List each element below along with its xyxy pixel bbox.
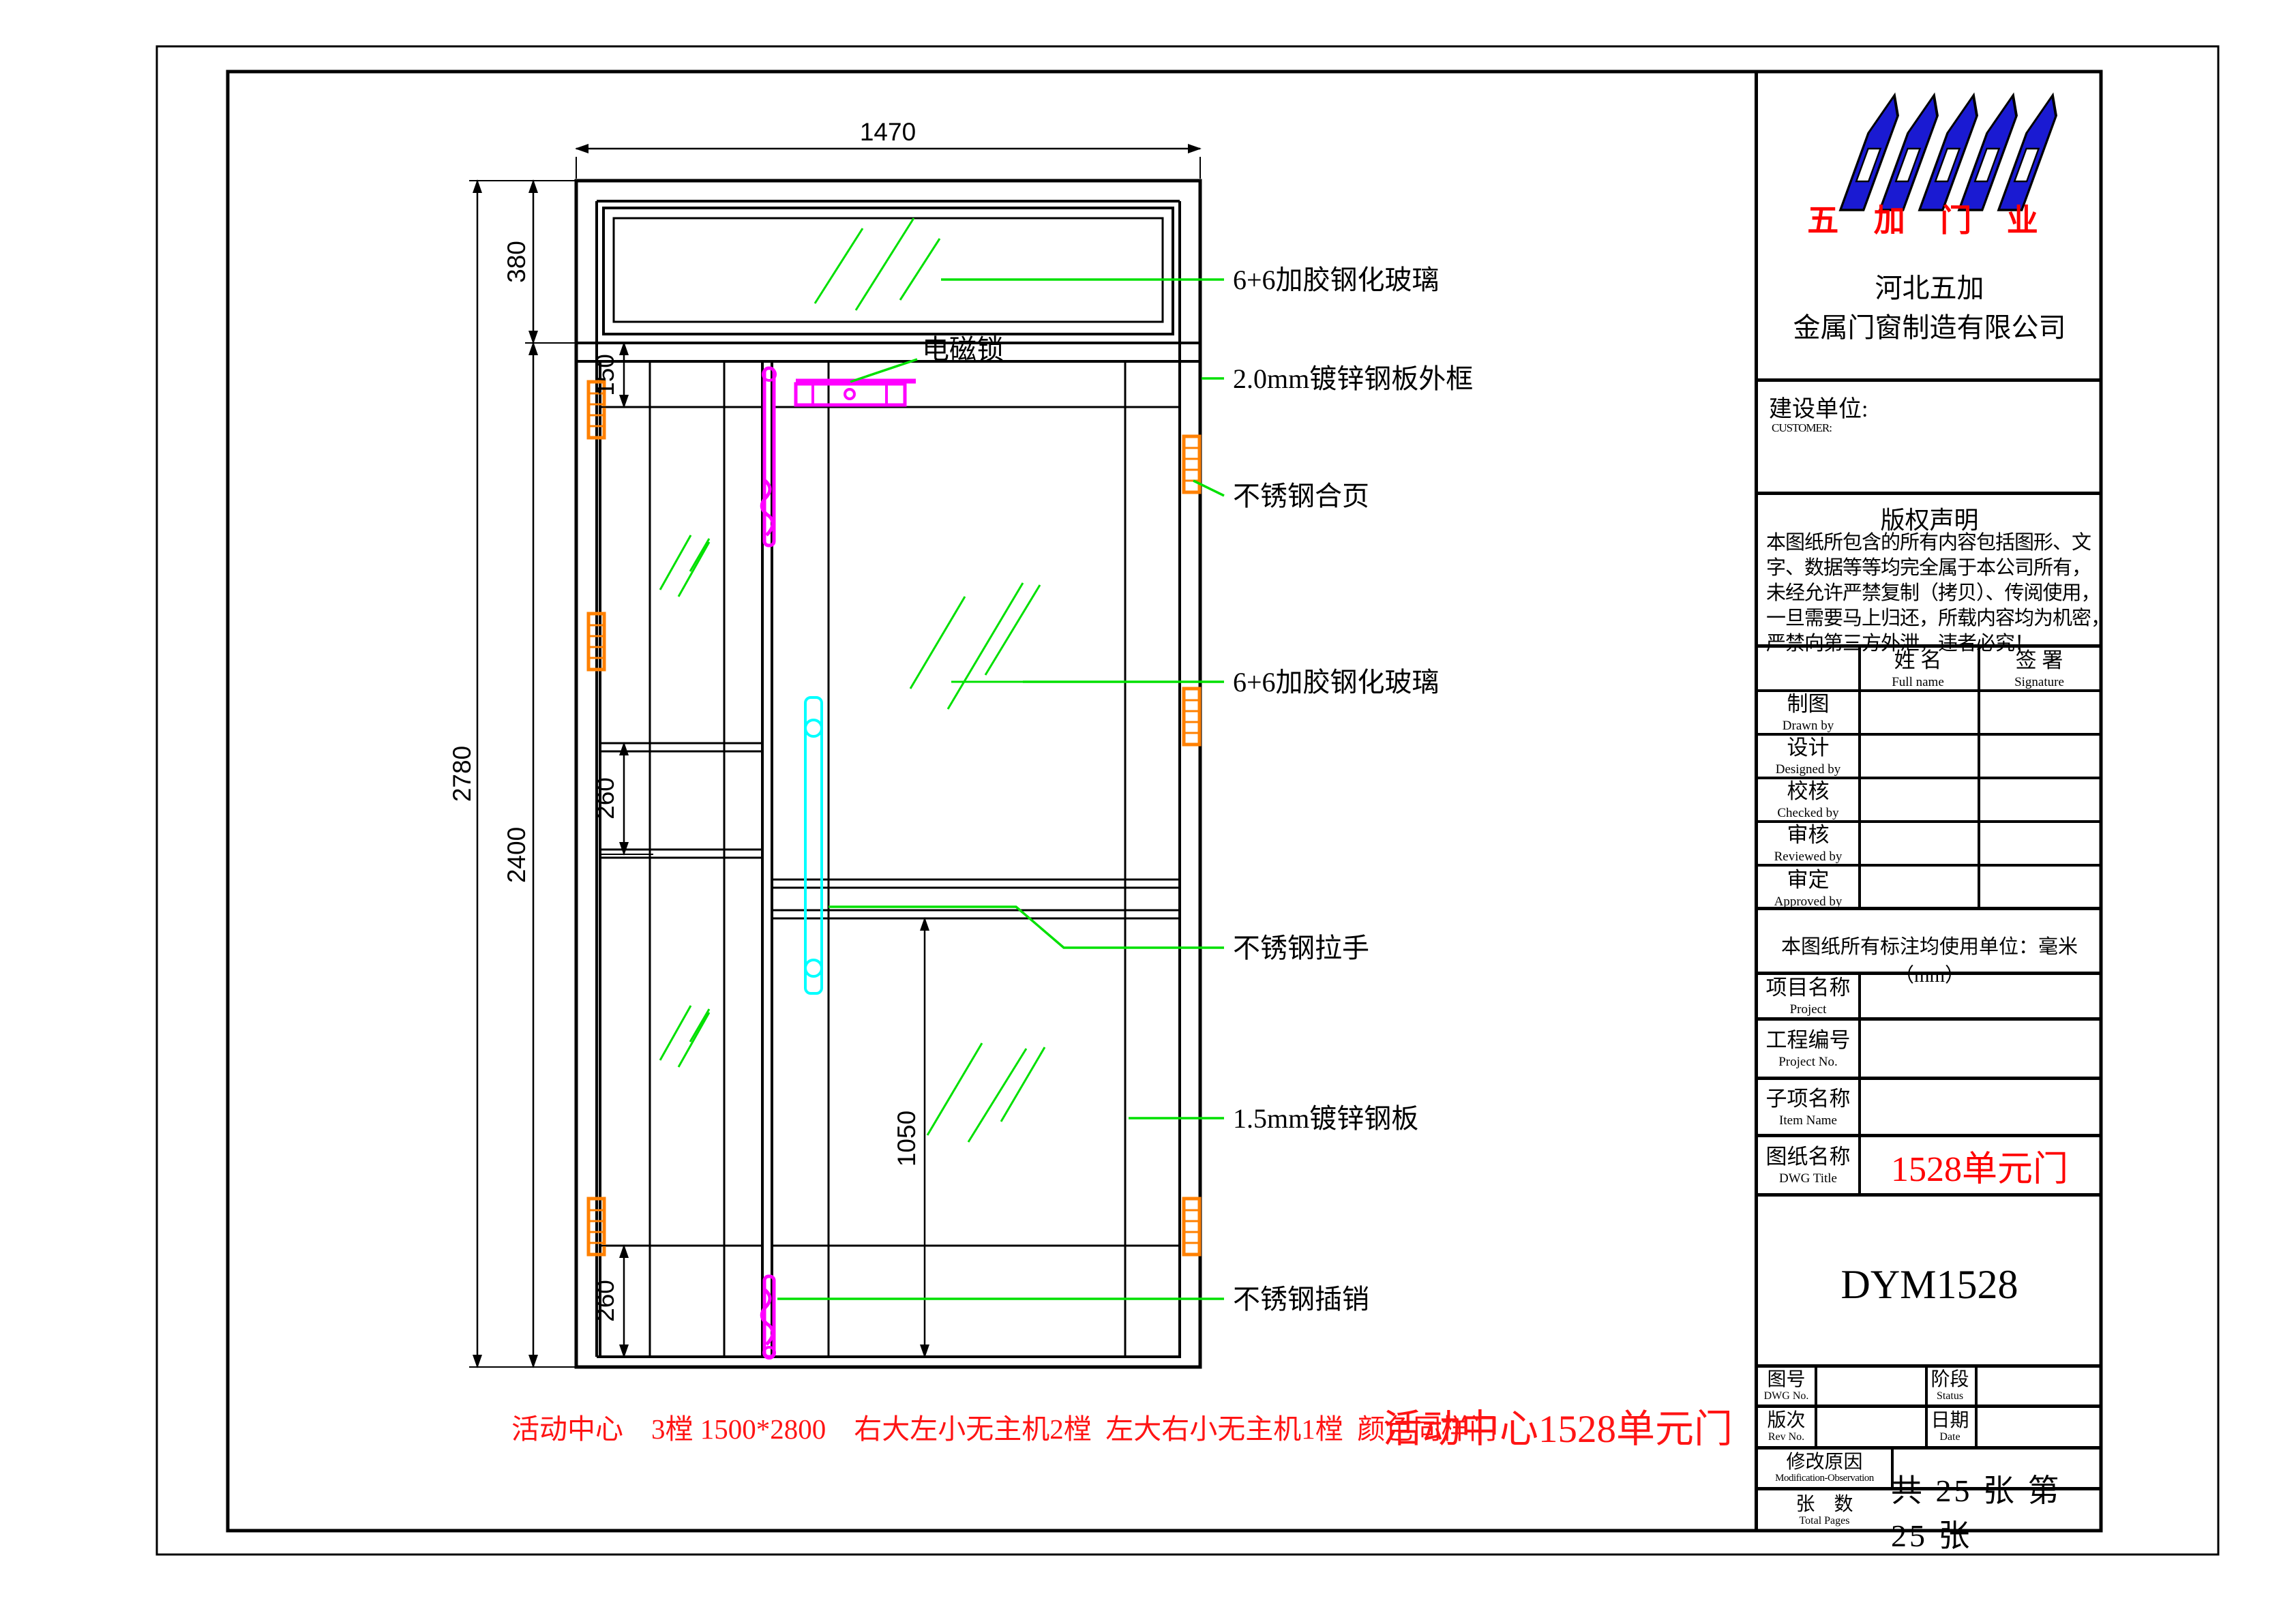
field-project-no-value (1858, 1021, 2101, 1077)
dim-width: 1470 (860, 118, 916, 146)
field-item-name-cn: 子项名称 (1766, 1085, 1851, 1113)
company-name-line1: 河北五加 (1758, 269, 2101, 307)
row-reviewed-en: Reviewed by (1774, 849, 1843, 865)
leader-lines (777, 280, 1224, 1299)
units-note-section: 本图纸所有标注均使用单位：毫米（mm） (1758, 910, 2101, 975)
grid-rev-date: 版次 Rev No. 日期 Date (1758, 1408, 2101, 1450)
field-project-en: Project (1790, 1002, 1827, 1018)
field-item-name-value (1858, 1080, 2101, 1134)
annotation-texts: 6+6加胶钢化玻璃 2.0mm镀锌钢板外框 不锈钢合页 6+6加胶钢化玻璃 不锈… (922, 265, 1473, 1315)
right-door-leaf (772, 361, 1180, 1357)
drawing-title-note: 活动中心1528单元门 (1383, 1398, 1733, 1454)
rev-no-en: Rev No. (1768, 1431, 1804, 1443)
date-en: Date (1939, 1431, 1960, 1443)
row-drawn-cn: 制图 (1787, 691, 1830, 718)
copyright-line: 未经允许严禁复制（拷贝）、传阅使用， (1766, 581, 2110, 606)
status-cn: 阶段 (1930, 1370, 1969, 1390)
customer-label-en: CUSTOMER: (1772, 421, 1832, 435)
copyright-section: 版权声明 本图纸所包含的所有内容包括图形、文 字、数据等等均完全属于本公司所有，… (1758, 495, 2101, 648)
model-number: DYM1528 (1758, 1261, 2101, 1308)
grid-total-pages: 张 数 Total Pages 共 25 张 第 25 张 (1758, 1490, 2101, 1531)
order-note: 活动中心 3樘 1500*2800 右大左小无主机2樘 左大右小无主机1樘 颜色… (511, 1406, 1497, 1447)
col-fullname-cn: 姓 名 (1894, 647, 1942, 674)
total-pages-en: Total Pages (1800, 1515, 1850, 1527)
col-signature-en: Signature (2014, 674, 2064, 691)
total-pages-value: 共 25 张 第 25 张 (1891, 1490, 2101, 1531)
drawing-sheet: 1470 2780 380 2400 150 260 260 1050 6+6加… (0, 0, 2296, 1622)
brand-name: 五 加 门 业 (1758, 196, 2101, 241)
row-reviewed-cn: 审核 (1787, 822, 1830, 849)
field-dwg-title-en: DWG Title (1779, 1171, 1837, 1187)
field-dwg-title-cn: 图纸名称 (1766, 1143, 1851, 1171)
status-en: Status (1937, 1390, 1963, 1402)
field-item-name-en: Item Name (1779, 1113, 1837, 1129)
dwg-no-cn: 图号 (1767, 1370, 1805, 1390)
label-flush-bolt: 不锈钢插销 (1233, 1284, 1369, 1315)
label-handle: 不锈钢拉手 (1233, 933, 1369, 963)
field-dwg-title: 图纸名称 DWG Title 1528单元门 (1758, 1137, 2101, 1197)
row-designed-cn: 设计 (1787, 734, 1830, 762)
total-pages-cn: 张 数 (1795, 1495, 1853, 1515)
row-approved-en: Approved by (1774, 894, 1843, 910)
field-project-value (1858, 975, 2101, 1017)
label-glass-main: 6+6加胶钢化玻璃 (1233, 667, 1440, 697)
dim-bottom-rail: 260 (591, 1280, 619, 1322)
field-item-name: 子项名称 Item Name (1758, 1080, 2101, 1137)
row-drawn-en: Drawn by (1783, 718, 1834, 734)
customer-label: 建设单位: (1769, 390, 1868, 423)
field-project: 项目名称 Project (1758, 975, 2101, 1021)
signature-table: 姓 名 Full name 签 署 Signature 制图 Drawn by … (1758, 648, 2101, 910)
date-cn: 日期 (1930, 1411, 1969, 1431)
flush-bolt-top (762, 368, 775, 545)
door-frame (576, 181, 1200, 1367)
model-section: DYM1528 (1758, 1197, 2101, 1368)
row-checked-cn: 校核 (1787, 778, 1830, 805)
field-project-no-en: Project No. (1778, 1054, 1838, 1070)
electromagnetic-lock (796, 381, 916, 405)
dim-lower-panel: 1050 (893, 1111, 921, 1167)
dim-top-rail: 150 (591, 354, 619, 396)
dim-overall-height: 2780 (448, 746, 476, 802)
copyright-line: 一旦需要马上归还，所载内容均为机密， (1766, 606, 2110, 631)
dim-opening: 2400 (503, 827, 531, 883)
label-maglock: 电磁锁 (922, 334, 1004, 365)
company-name-line2: 金属门窗制造有限公司 (1758, 309, 2101, 347)
field-project-no-cn: 工程编号 (1766, 1027, 1851, 1054)
pull-handle (805, 697, 822, 993)
dim-mid-rail: 260 (591, 777, 619, 820)
dwg-title-value: 1528单元门 (1858, 1137, 2101, 1193)
dimension-texts: 1470 2780 380 2400 150 260 260 1050 (448, 118, 921, 1322)
label-glass-top: 6+6加胶钢化玻璃 (1233, 265, 1440, 295)
transom-window (603, 208, 1173, 334)
hinge-right-top (1184, 436, 1199, 492)
row-checked-en: Checked by (1777, 805, 1838, 822)
label-hinge: 不锈钢合页 (1233, 481, 1369, 511)
label-steel-panel: 1.5mm镀锌钢板 (1233, 1103, 1418, 1134)
copyright-line: 本图纸所包含的所有内容包括图形、文 (1766, 530, 2110, 556)
dimension-lines (469, 149, 1200, 1367)
flush-bolt-bottom (762, 1276, 775, 1358)
field-project-no: 工程编号 Project No. (1758, 1021, 2101, 1080)
row-designed-en: Designed by (1776, 762, 1841, 778)
customer-section: 建设单位: CUSTOMER: (1758, 382, 2101, 495)
dim-transom: 380 (503, 241, 531, 283)
title-block-brand-section: 五 加 门 业 河北五加 金属门窗制造有限公司 (1758, 72, 2101, 382)
rev-no-cn: 版次 (1767, 1411, 1805, 1431)
hinge-right-bottom (1184, 1199, 1199, 1255)
col-signature-cn: 签 署 (2016, 647, 2063, 674)
col-fullname-en: Full name (1892, 674, 1944, 691)
copyright-line: 字、数据等等均完全属于本公司所有， (1766, 556, 2110, 581)
row-approved-cn: 审定 (1787, 867, 1830, 894)
title-block: 五 加 门 业 河北五加 金属门窗制造有限公司 建设单位: CUSTOMER: … (1755, 72, 2101, 1531)
modification-cn: 修改原因 (1786, 1452, 1862, 1473)
dwg-no-en: DWG No. (1764, 1390, 1809, 1402)
grid-dwgno-status: 图号 DWG No. 阶段 Status (1758, 1368, 2101, 1408)
left-door-leaf (600, 361, 762, 1357)
field-project-cn: 项目名称 (1766, 974, 1851, 1002)
label-outer-frame: 2.0mm镀锌钢板外框 (1233, 363, 1473, 394)
modification-en: Modification-Observation (1775, 1473, 1874, 1484)
hinge-right-mid (1184, 689, 1199, 745)
